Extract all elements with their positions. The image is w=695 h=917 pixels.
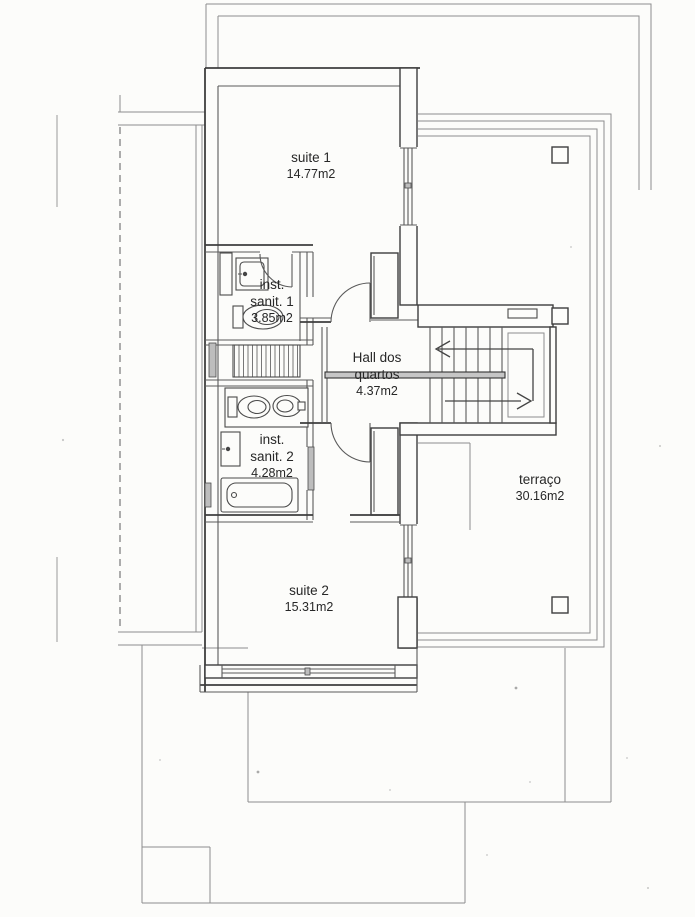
lower-level-outline bbox=[142, 645, 611, 903]
suite2-door-arc bbox=[331, 423, 370, 462]
shower-door-bar bbox=[209, 343, 216, 377]
room-name: Hall dos bbox=[353, 349, 402, 366]
suite2-south-window bbox=[200, 648, 417, 692]
suite2-east-window bbox=[399, 524, 418, 598]
stairs-bottom-wall bbox=[400, 423, 556, 435]
room-area: 15.31m2 bbox=[285, 599, 334, 615]
room-name: sanit. 1 bbox=[250, 293, 294, 310]
sanit2-door-leaf bbox=[308, 447, 314, 490]
stairs-east-wall bbox=[550, 327, 556, 423]
shower bbox=[209, 343, 300, 377]
room-area: 30.16m2 bbox=[516, 488, 565, 504]
room-name: suite 1 bbox=[287, 149, 336, 166]
room-area: 4.37m2 bbox=[353, 383, 402, 399]
room-area: 4.28m2 bbox=[250, 465, 294, 481]
sanit2-bathtub bbox=[221, 478, 298, 512]
suite1-south-wall bbox=[205, 245, 313, 252]
room-label-sanit2: inst. sanit. 2 4.28m2 bbox=[250, 431, 294, 481]
stairs-wall-niche bbox=[508, 309, 537, 318]
room-name: inst. bbox=[250, 276, 294, 293]
wardrobe-bottom bbox=[371, 428, 398, 515]
wardrobe-top bbox=[371, 253, 398, 318]
room-name: sanit. 2 bbox=[250, 448, 294, 465]
room-label-sanit1: inst. sanit. 1 3.85m2 bbox=[250, 276, 294, 326]
room-area: 14.77m2 bbox=[287, 166, 336, 182]
sanit1-cabinet bbox=[220, 253, 232, 295]
room-label-hall: Hall dos quartos 4.37m2 bbox=[353, 349, 402, 399]
floor-plan-drawing bbox=[0, 0, 695, 917]
bath-wall-bar bbox=[205, 483, 211, 507]
suite1-window bbox=[399, 147, 418, 226]
room-name: suite 2 bbox=[285, 582, 334, 599]
roof-outline bbox=[206, 4, 651, 190]
terrace-frame bbox=[418, 114, 611, 802]
scan-specks bbox=[62, 246, 661, 889]
suite2-se-wall bbox=[398, 597, 417, 648]
left-wing-outline bbox=[57, 95, 205, 645]
sanit2-sink bbox=[221, 432, 240, 466]
room-name: terraço bbox=[516, 471, 565, 488]
suite1-door-arc bbox=[331, 283, 370, 322]
floor-plan-page: suite 1 14.77m2 inst. sanit. 1 3.85m2 Ha… bbox=[0, 0, 695, 917]
room-name: inst. bbox=[250, 431, 294, 448]
room-name: quartos bbox=[353, 366, 402, 383]
sanit2-toilet bbox=[228, 396, 270, 418]
room-label-suite1: suite 1 14.77m2 bbox=[287, 149, 336, 182]
room-label-suite2: suite 2 15.31m2 bbox=[285, 582, 334, 615]
room-area: 3.85m2 bbox=[250, 310, 294, 326]
room-label-terraco: terraço 30.16m2 bbox=[516, 471, 565, 504]
